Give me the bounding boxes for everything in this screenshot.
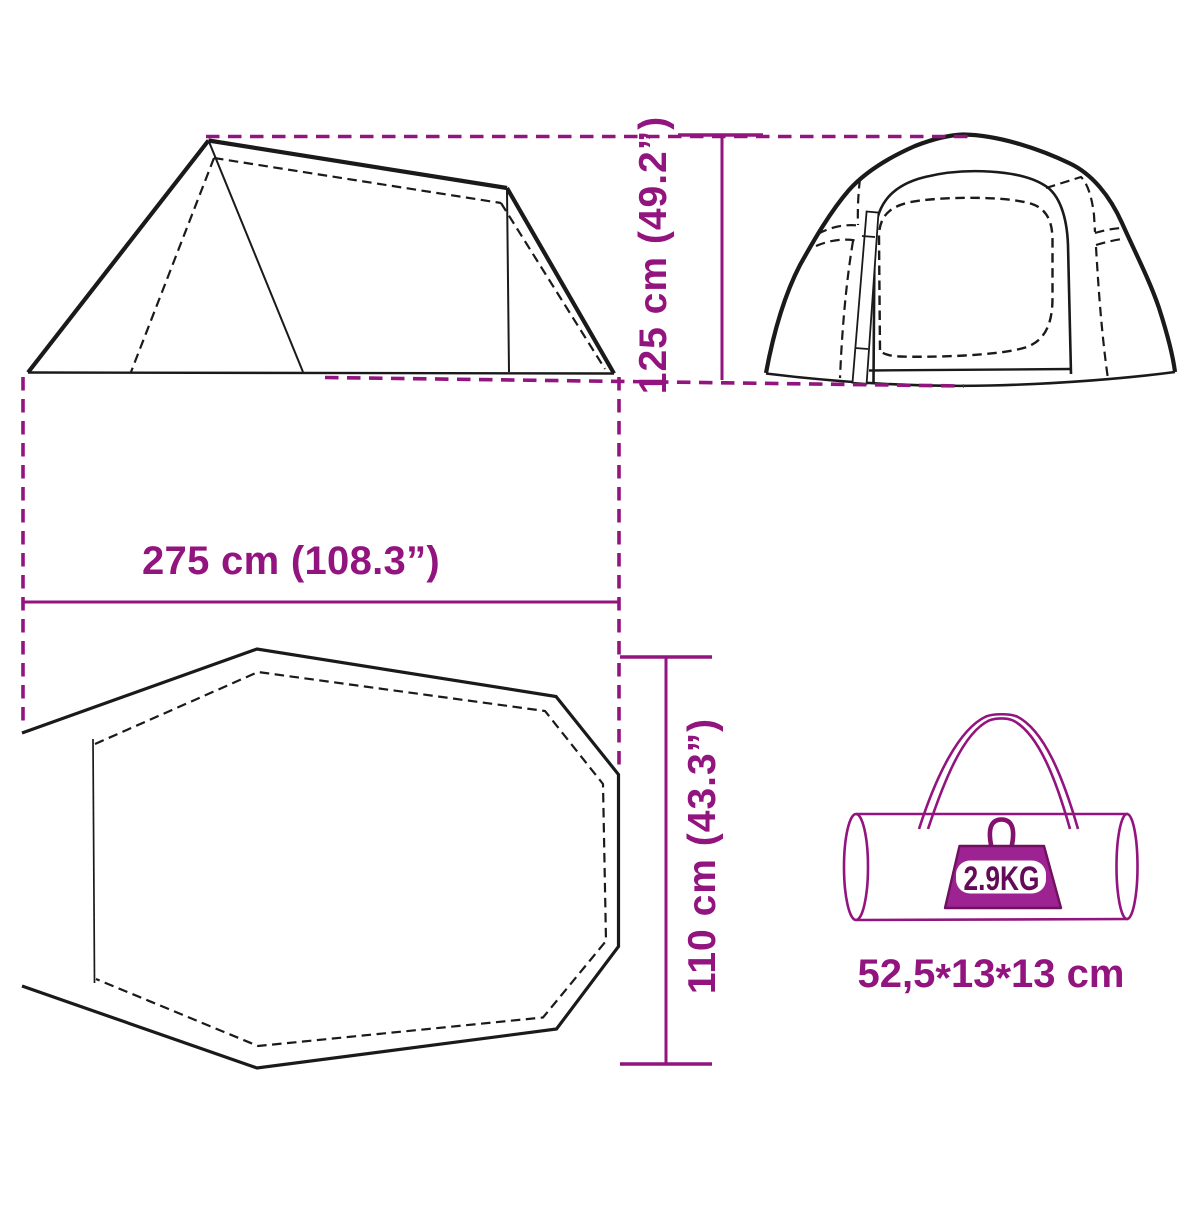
svg-text:125 cm (49.2”): 125 cm (49.2”) xyxy=(632,116,675,395)
svg-text:275 cm (108.3”): 275 cm (108.3”) xyxy=(142,539,440,583)
svg-text:110 cm (43.3”): 110 cm (43.3”) xyxy=(681,718,724,994)
svg-text:52,5*13*13 cm: 52,5*13*13 cm xyxy=(858,952,1125,1001)
svg-text:2.9KG: 2.9KG xyxy=(964,860,1040,898)
